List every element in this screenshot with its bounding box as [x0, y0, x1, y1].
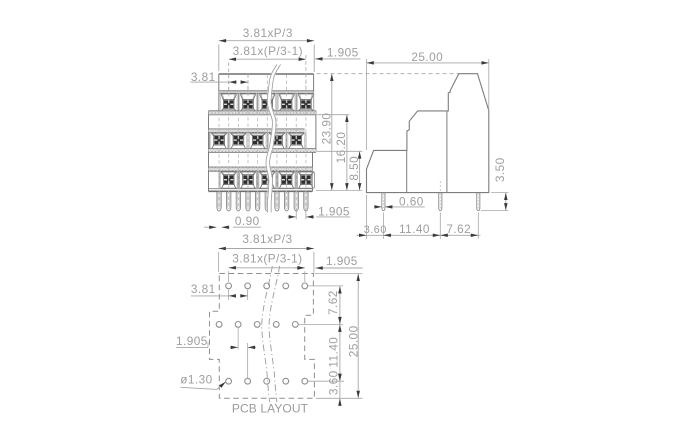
svg-text:0.60: 0.60 [399, 194, 424, 208]
svg-text:8.50: 8.50 [347, 156, 361, 181]
svg-text:1.905: 1.905 [326, 254, 358, 268]
svg-text:7.62: 7.62 [326, 290, 340, 315]
svg-text:PCB LAYOUT: PCB LAYOUT [232, 402, 309, 416]
svg-text:11.40: 11.40 [327, 337, 341, 368]
svg-text:3.81: 3.81 [191, 282, 216, 296]
svg-text:3.81x(P/3-1): 3.81x(P/3-1) [233, 44, 303, 58]
svg-text:1.905: 1.905 [176, 334, 208, 348]
svg-text:3.60: 3.60 [327, 370, 341, 395]
svg-text:3.81xP/3: 3.81xP/3 [243, 26, 293, 40]
svg-text:7.62: 7.62 [446, 222, 471, 236]
svg-text:11.40: 11.40 [399, 222, 430, 236]
svg-text:1.905: 1.905 [327, 46, 359, 60]
svg-text:3.81xP/3: 3.81xP/3 [242, 232, 292, 246]
svg-text:25.00: 25.00 [411, 50, 443, 64]
svg-text:3.50: 3.50 [493, 157, 507, 182]
svg-text:3.81x(P/3-1): 3.81x(P/3-1) [232, 251, 302, 265]
svg-text:23.90: 23.90 [319, 113, 333, 145]
svg-text:ø1.30: ø1.30 [180, 372, 212, 386]
svg-text:0.90: 0.90 [235, 214, 260, 228]
